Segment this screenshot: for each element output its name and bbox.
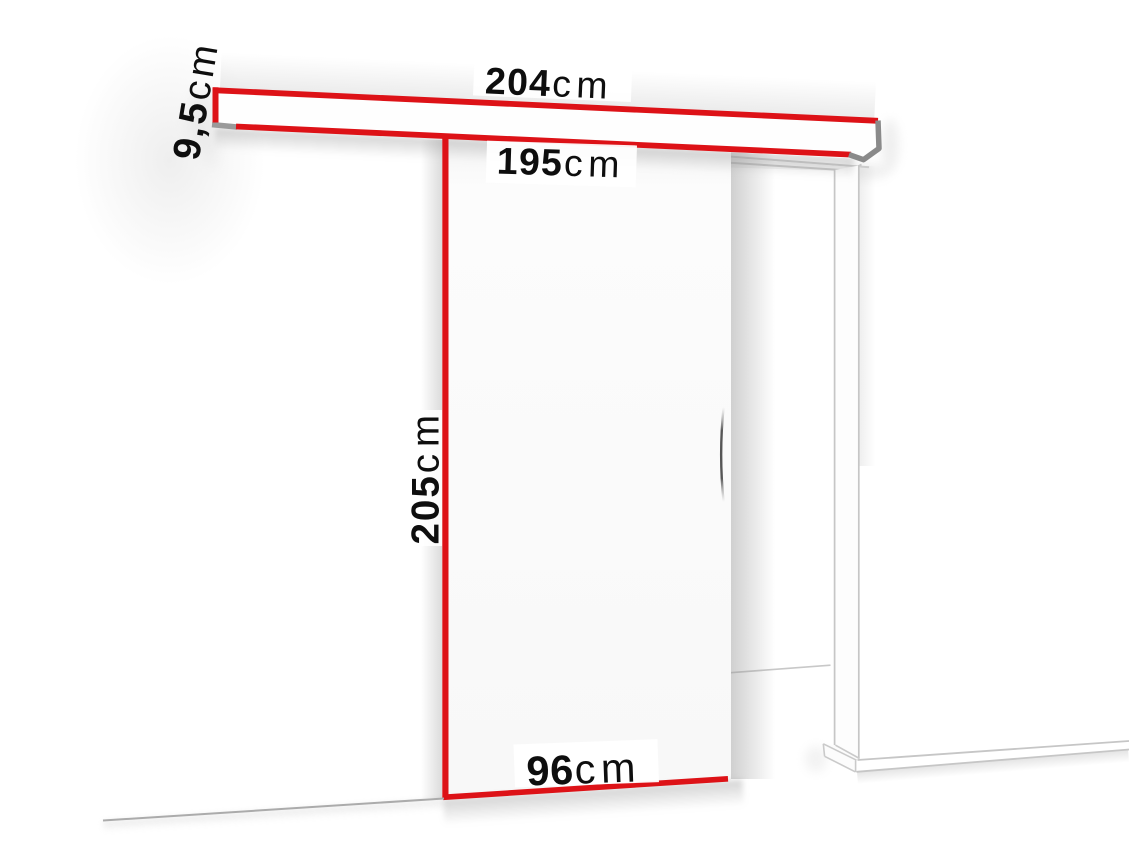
svg-text:205cm: 205cm [405, 408, 448, 545]
svg-text:195cm: 195cm [496, 140, 625, 186]
svg-text:96cm: 96cm [526, 743, 642, 794]
svg-text:204cm: 204cm [484, 59, 614, 106]
